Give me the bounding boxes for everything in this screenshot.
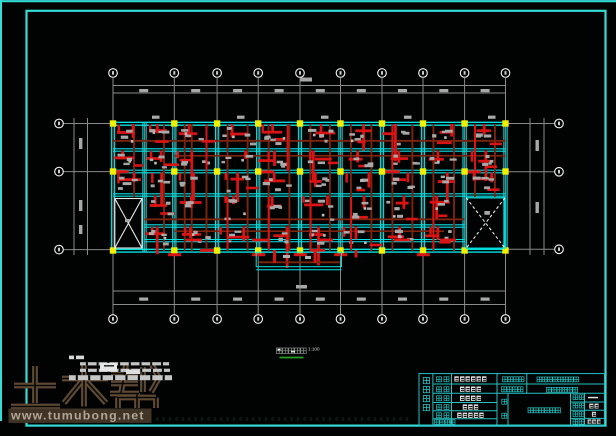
svg-text:www.tumubong.net: www.tumubong.net — [10, 409, 145, 423]
svg-text:1:100: 1:100 — [308, 347, 320, 352]
